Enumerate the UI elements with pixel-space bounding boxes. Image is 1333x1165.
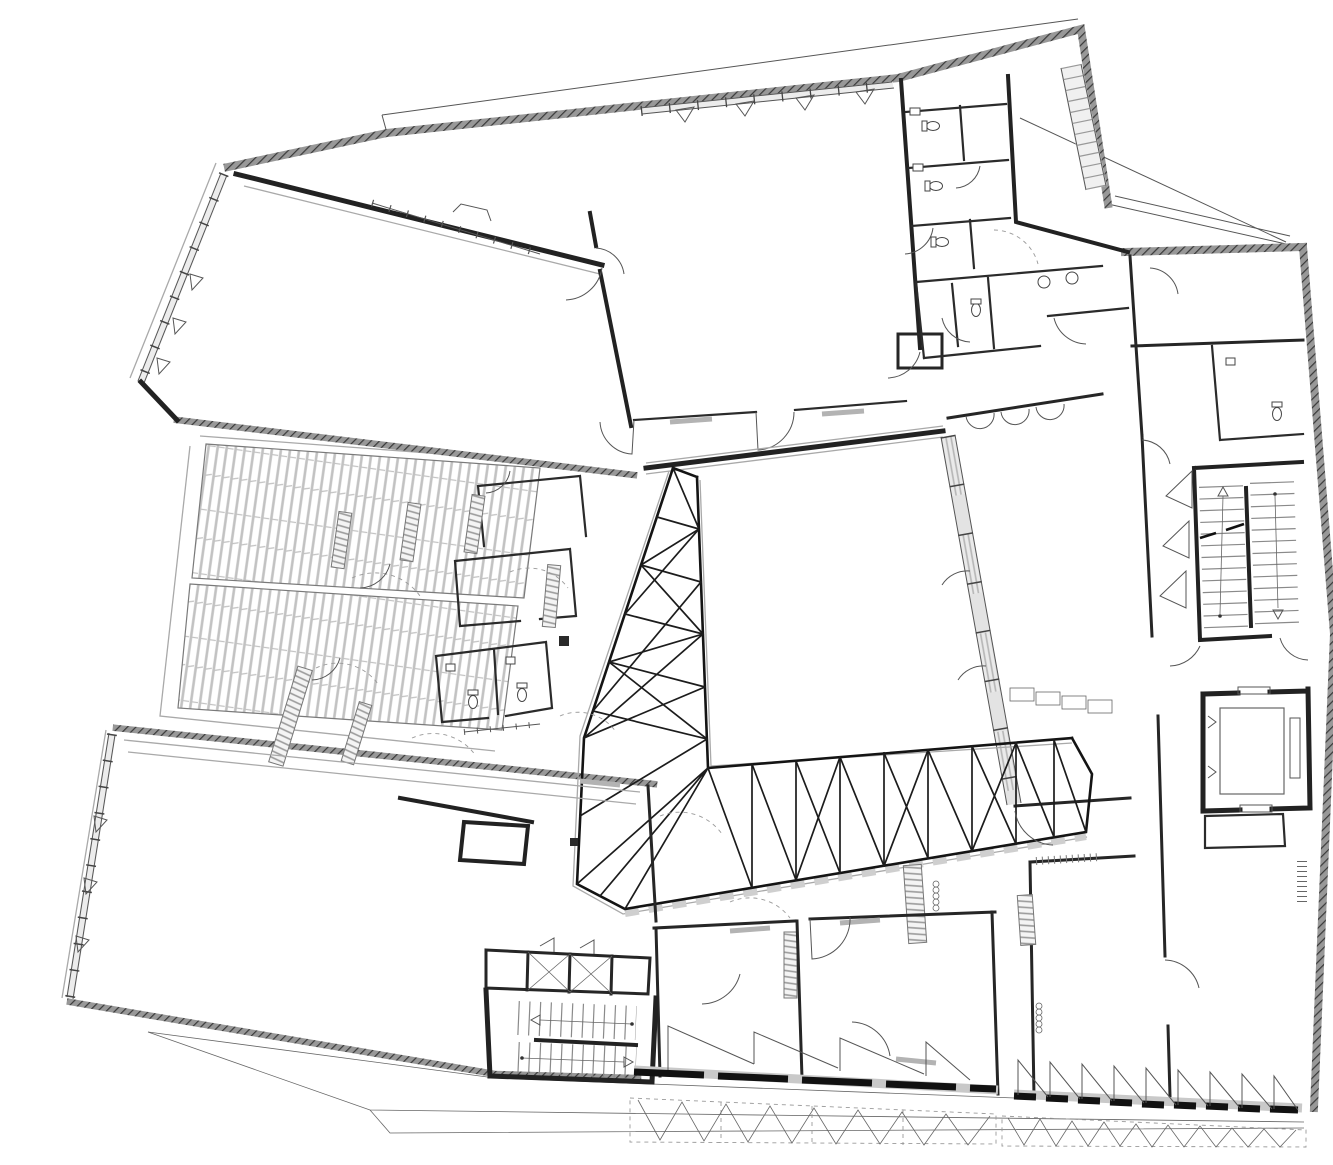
door-swings (566, 268, 1199, 988)
elevator (1203, 687, 1310, 812)
sink-icon (910, 108, 1078, 288)
bench-row (1010, 688, 1112, 713)
south-switchback-stair (486, 990, 656, 1082)
upper-left-hall (130, 163, 631, 426)
top-centre-hall (600, 80, 942, 454)
east-switchback-stair (1194, 462, 1302, 640)
floor-plan-drawing (40, 16, 1333, 1149)
floor-plan (40, 16, 1333, 1149)
canopy-outline (382, 19, 1290, 244)
atrium-truss (559, 468, 1092, 914)
terrace-decks (160, 436, 550, 751)
